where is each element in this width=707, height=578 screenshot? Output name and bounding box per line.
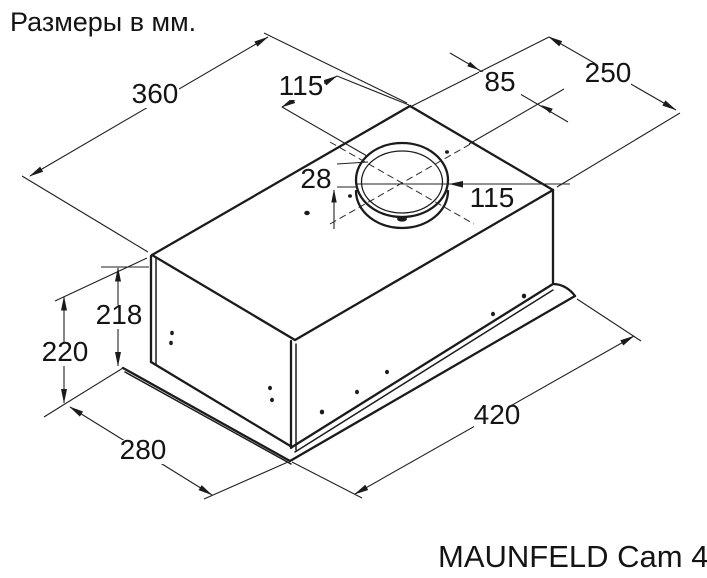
- extension-lines: [22, 33, 680, 499]
- technical-drawing: 360 115 85 250 28 115 218 220 280 420 Ра…: [0, 0, 707, 578]
- drawing-title: Размеры в мм.: [10, 7, 196, 37]
- product-name: MAUNFELD Cam 45: [438, 539, 707, 574]
- collar-height-arrow: [331, 189, 336, 203]
- duct-diameter-arrow: [449, 181, 463, 188]
- dim-bottom-width-label: 420: [474, 399, 521, 430]
- dim-duct-offset-x-label: 115: [279, 70, 324, 101]
- dim-bottom-depth-label: 280: [120, 434, 167, 465]
- dim-duct-diameter-label: 115: [470, 182, 515, 213]
- dim-collar-height-label: 28: [300, 163, 331, 194]
- label-masks: [42, 63, 631, 464]
- dim-duct-offset-y-label: 85: [484, 66, 515, 97]
- dim-top-depth-label: 250: [585, 57, 632, 88]
- technical-drawing-page: 360 115 85 250 28 115 218 220 280 420 Ра…: [0, 0, 707, 578]
- dimension-labels: 360 115 85 250 28 115 218 220 280 420: [42, 57, 632, 465]
- dim-85-arrow-left: [467, 62, 479, 70]
- spigot-tab: [304, 211, 310, 215]
- dim-overall-height-label: 220: [42, 336, 89, 367]
- dim-top-width-label: 360: [132, 78, 179, 109]
- dimension-lines: [30, 37, 676, 495]
- spigot-tab: [397, 216, 407, 221]
- dim-body-height-label: 218: [96, 299, 143, 330]
